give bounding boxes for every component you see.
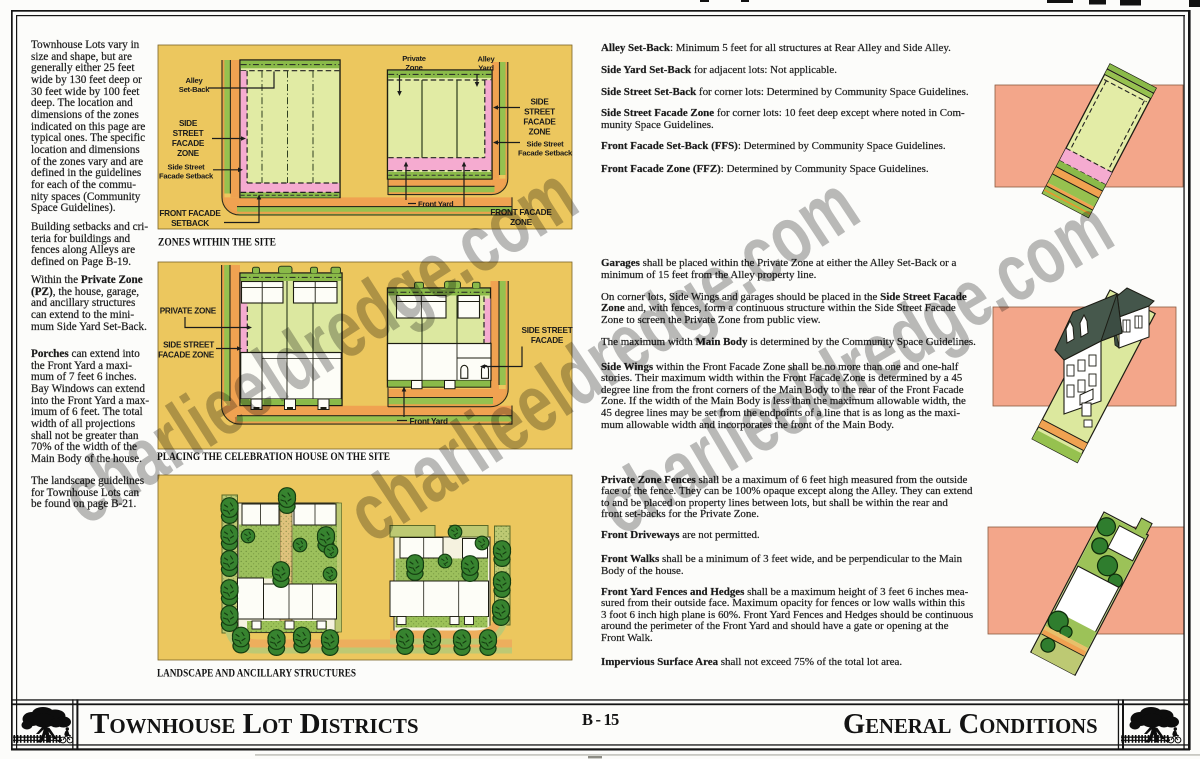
svg-text:Private: Private — [402, 54, 426, 63]
svg-text:SETBACK: SETBACK — [171, 219, 209, 228]
svg-text:SIDE STREET: SIDE STREET — [163, 341, 214, 350]
svg-text:FRONT FACADE: FRONT FACADE — [159, 209, 221, 218]
svg-text:ZONE: ZONE — [177, 149, 200, 158]
svg-text:Side Street: Side Street — [527, 140, 565, 149]
svg-text:LANDSCAPE AND ANCILLARY STRUCT: LANDSCAPE AND ANCILLARY STRUCTURES — [157, 668, 356, 680]
svg-text:Alley: Alley — [186, 76, 204, 85]
svg-text:Set-Back: Set-Back — [179, 85, 211, 94]
svg-text:FACADE: FACADE — [531, 336, 564, 345]
svg-text:SIDE STREET: SIDE STREET — [522, 326, 573, 335]
svg-text:ZONE: ZONE — [529, 128, 552, 137]
svg-text:STREET: STREET — [173, 129, 204, 138]
svg-text:Zone: Zone — [405, 63, 422, 72]
svg-text:Alley: Alley — [478, 55, 496, 64]
svg-text:STREET: STREET — [524, 108, 555, 117]
svg-text:Facade Setback: Facade Setback — [159, 172, 214, 181]
svg-text:FRONT FACADE: FRONT FACADE — [490, 208, 552, 217]
svg-text:Front Yard: Front Yard — [418, 200, 454, 209]
svg-text:FACADE: FACADE — [172, 139, 205, 148]
svg-text:FACADE ZONE: FACADE ZONE — [158, 351, 215, 360]
svg-text:Yard: Yard — [478, 64, 494, 73]
svg-text:Front Yard: Front Yard — [410, 417, 449, 426]
svg-text:ZONES WITHIN THE SITE: ZONES WITHIN THE SITE — [158, 237, 276, 249]
svg-text:SIDE: SIDE — [179, 119, 198, 128]
svg-text:FACADE: FACADE — [523, 118, 556, 127]
svg-text:SIDE: SIDE — [530, 98, 549, 107]
svg-text:Side Street: Side Street — [168, 163, 206, 172]
svg-text:PRIVATE ZONE: PRIVATE ZONE — [160, 307, 217, 316]
svg-text:PLACING THE CELEBRATION HOUSE: PLACING THE CELEBRATION HOUSE ON THE SIT… — [157, 451, 390, 463]
svg-text:Facade Setback: Facade Setback — [518, 149, 573, 158]
svg-text:ZONE: ZONE — [510, 218, 533, 227]
